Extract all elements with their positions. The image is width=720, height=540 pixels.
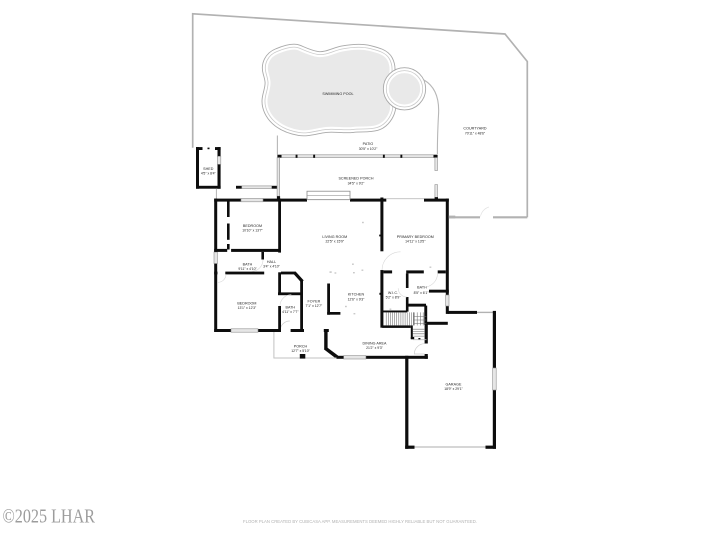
svg-text:34'5" x 9'2": 34'5" x 9'2" [348,181,366,185]
svg-text:10'10" x 13'7": 10'10" x 13'7" [242,229,263,233]
svg-text:SWIMMING POOL: SWIMMING POOL [322,92,353,96]
svg-text:12'7" x 5'10": 12'7" x 5'10" [291,349,310,353]
svg-text:FOYER: FOYER [308,299,321,303]
svg-text:9'11" x 4'10": 9'11" x 4'10" [238,267,257,271]
svg-text:5'2" x 8'9": 5'2" x 8'9" [386,295,402,299]
svg-text:HALL: HALL [267,260,276,264]
svg-text:SHED: SHED [203,167,214,171]
svg-text:SCREENED PORCH: SCREENED PORCH [338,177,373,181]
svg-text:BEDROOM: BEDROOM [237,301,256,305]
svg-text:4'5" x 8'4": 4'5" x 8'4" [201,171,217,175]
svg-text:18'9" x 29'1": 18'9" x 29'1" [444,387,463,391]
svg-text:BATH: BATH [243,262,253,266]
svg-text:©2025 LHAR: ©2025 LHAR [3,506,96,528]
svg-text:3'4" x 4'10": 3'4" x 4'10" [263,265,281,269]
svg-text:12'6" x 9'3": 12'6" x 9'3" [348,297,366,301]
svg-text:DINING AREA: DINING AREA [362,341,387,345]
svg-text:4'11" x 7'7": 4'11" x 7'7" [282,310,299,314]
svg-text:KITCHEN: KITCHEN [348,293,365,297]
svg-text:21'2" x 9'3": 21'2" x 9'3" [366,346,384,350]
svg-text:PRIMARY BEDROOM: PRIMARY BEDROOM [397,235,434,239]
svg-text:BATH: BATH [285,305,295,309]
svg-text:BEDROOM: BEDROOM [243,224,262,228]
svg-text:8'5" x 6'1": 8'5" x 6'1" [414,291,430,295]
svg-text:GARAGE: GARAGE [446,382,462,386]
svg-text:FLOOR PLAN CREATED BY CUBICASA: FLOOR PLAN CREATED BY CUBICASA APP. MEAS… [243,519,477,524]
svg-text:13'1" x 12'3": 13'1" x 12'3" [238,306,257,310]
svg-text:PORCH: PORCH [294,344,308,348]
svg-text:COURTYARD: COURTYARD [463,127,486,131]
svg-text:22'5" x 15'9": 22'5" x 15'9" [325,240,344,244]
svg-text:PATIO: PATIO [363,142,374,146]
svg-text:70'11" x 48'6": 70'11" x 48'6" [465,131,486,135]
svg-text:30'5" x 10'2": 30'5" x 10'2" [359,147,378,151]
svg-text:BATH: BATH [417,286,427,290]
svg-text:7'1" x 12'7": 7'1" x 12'7" [306,304,324,308]
svg-text:LIVING ROOM: LIVING ROOM [322,235,347,239]
svg-text:W.I.C.: W.I.C. [388,291,398,295]
svg-text:14'11" x 13'5": 14'11" x 13'5" [405,240,426,244]
